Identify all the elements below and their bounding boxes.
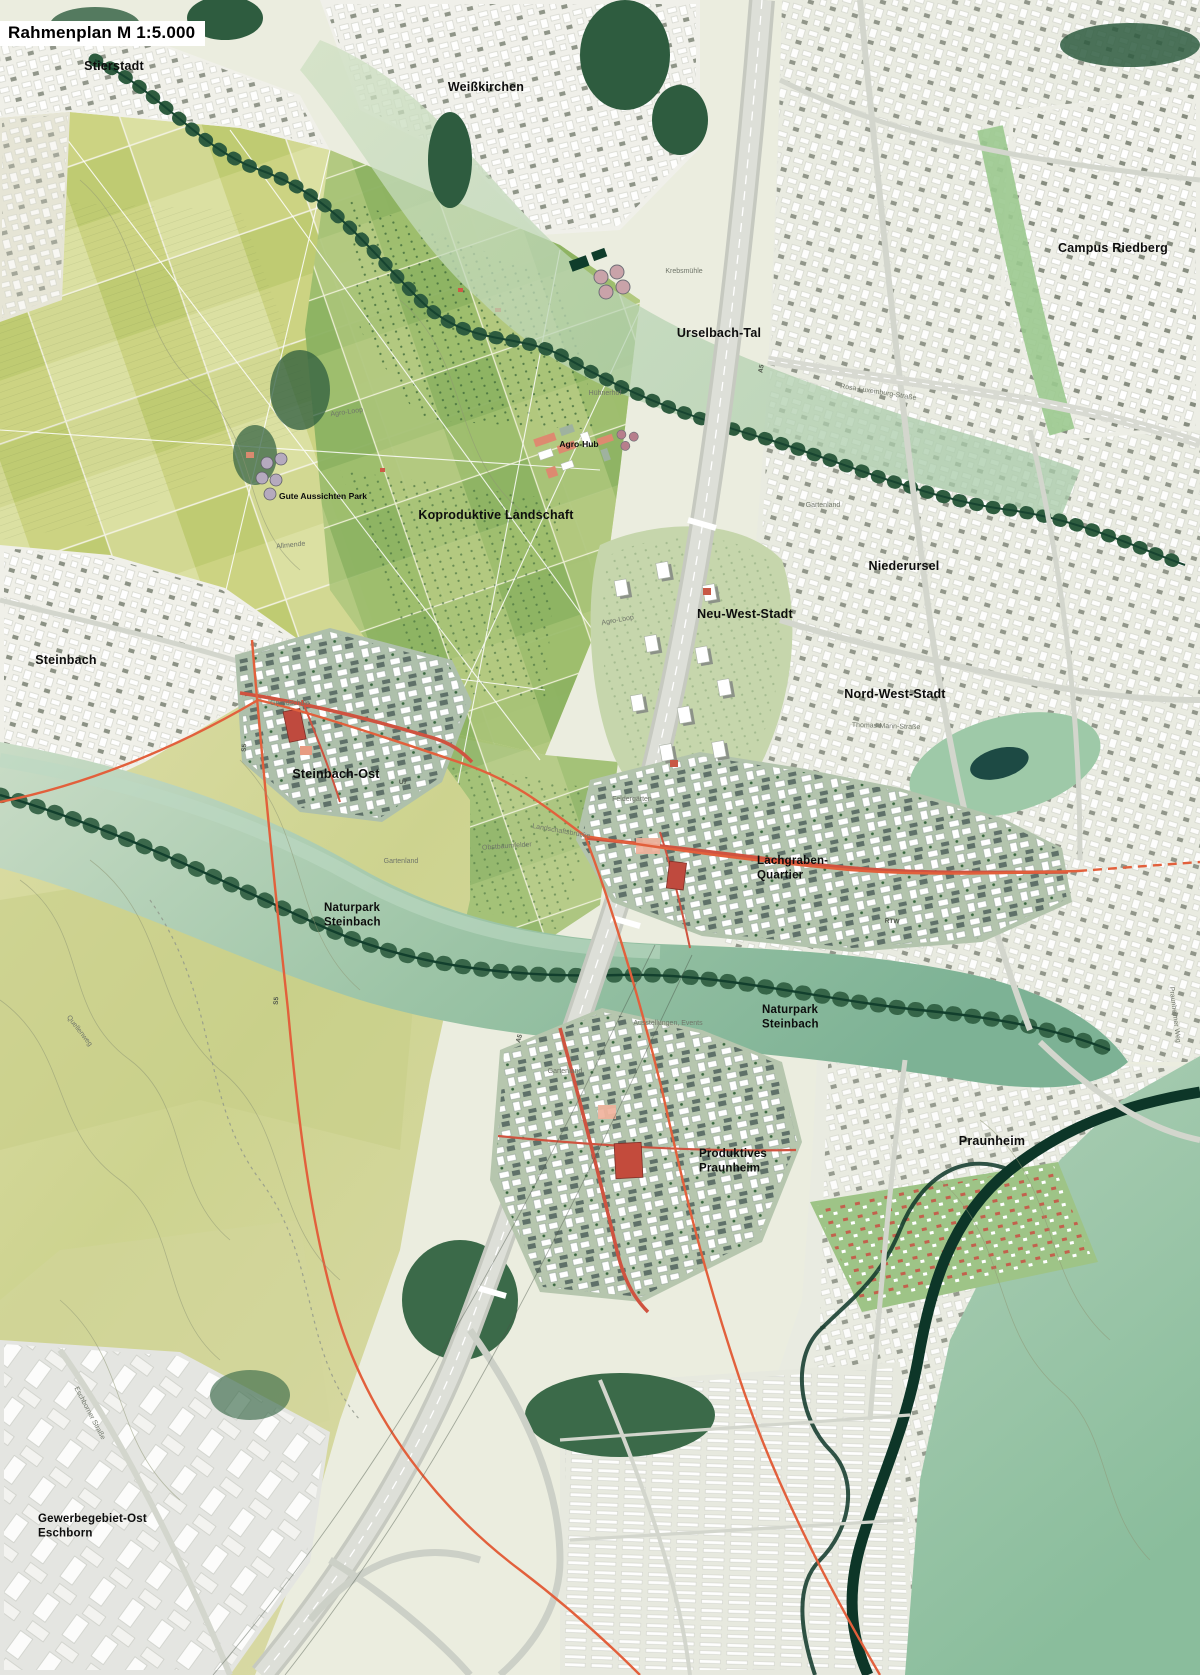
district-label: Campus Riedberg	[1058, 241, 1168, 255]
district-label: Neu-West-Stadt	[697, 607, 793, 621]
minor-label: Gartenland	[806, 502, 841, 509]
transit-label: A5	[757, 364, 765, 374]
minor-label: Gartenland	[548, 1068, 583, 1075]
minor-label: Grundschule	[270, 700, 310, 707]
district-label: Steinbach-Ost	[292, 767, 380, 781]
map-title: Rahmenplan M 1:5.000	[0, 21, 205, 46]
district-label: Niederursel	[869, 559, 940, 573]
rahmenplan-map: StierstadtWeißkirchenCampus RiedbergUrse…	[0, 0, 1200, 1675]
minor-label: Ausstellungen, Events	[633, 1020, 703, 1027]
district-label: Stierstadt	[84, 59, 144, 73]
poi-label: Agro-Hub	[559, 439, 598, 449]
district-label: Weißkirchen	[448, 80, 524, 94]
district-label: Steinbach	[35, 653, 97, 667]
district-label: Urselbach-Tal	[677, 326, 761, 340]
minor-label: Feldergärten	[612, 796, 652, 803]
minor-label: Gartenland	[384, 858, 419, 865]
transit-label: S5	[241, 743, 249, 752]
transit-label: S5	[273, 996, 281, 1005]
district-label: Nord-West-Stadt	[844, 687, 946, 701]
transit-label: RTW	[884, 918, 900, 926]
minor-label: Hühnerhof	[589, 390, 622, 397]
poi-label: Gute Aussichten Park	[279, 491, 367, 501]
map-canvas: StierstadtWeißkirchenCampus RiedbergUrse…	[0, 0, 1200, 1675]
district-label: Koproduktive Landschaft	[418, 508, 574, 522]
transit-label: U7	[399, 779, 408, 786]
minor-label: Krebsmühle	[665, 268, 702, 275]
map-title-text: Rahmenplan M 1:5.000	[8, 23, 195, 42]
district-label: Praunheim	[959, 1134, 1025, 1148]
